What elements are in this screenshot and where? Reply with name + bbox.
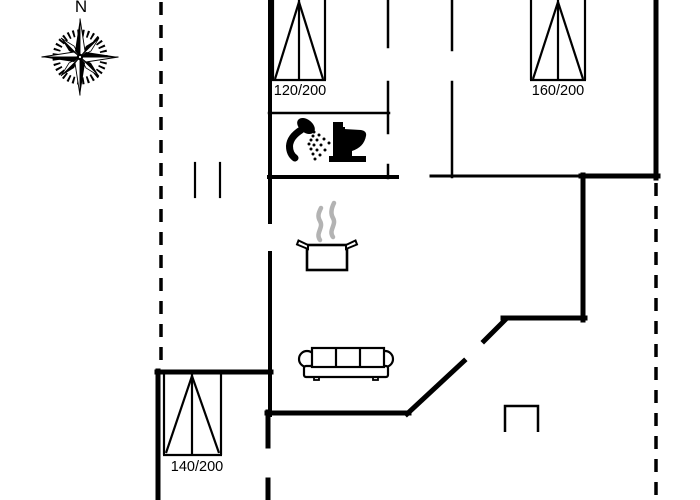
sofa-backrest (312, 348, 384, 367)
bed-duvet-line (192, 376, 219, 453)
bed-duvet-line (558, 2, 583, 79)
bed-size-label: 160/200 (529, 83, 587, 99)
steam-icon (318, 203, 334, 240)
compass-north-label: N (68, 0, 94, 17)
wall-segment-diagonal (484, 319, 506, 341)
double-bed-icon (272, 0, 326, 80)
pot-handle (346, 241, 357, 250)
wall-segment-diagonal (407, 361, 464, 414)
bed-duvet-line (299, 2, 323, 79)
bed-size-label: 120/200 (271, 83, 329, 99)
cooking-pot-icon (297, 203, 357, 270)
sofa-icon (299, 348, 393, 380)
floor-plan: N 120/200 160/200 140/200 const data = J… (0, 0, 700, 500)
bed-duvet-line (275, 2, 299, 79)
bed-duvet-line (533, 2, 558, 79)
bed-size-label: 140/200 (168, 459, 226, 475)
shower-spray-dots (308, 131, 331, 161)
niche-icon (505, 406, 538, 432)
pot-handle (297, 241, 308, 250)
floor-plan-drawing (0, 0, 700, 500)
shower-head-icon (290, 115, 331, 161)
double-bed-icon (530, 0, 586, 80)
toilet-icon (329, 122, 366, 162)
compass-rose-icon (42, 19, 119, 96)
double-bed-icon (163, 374, 222, 455)
bed-duvet-line (166, 376, 192, 453)
